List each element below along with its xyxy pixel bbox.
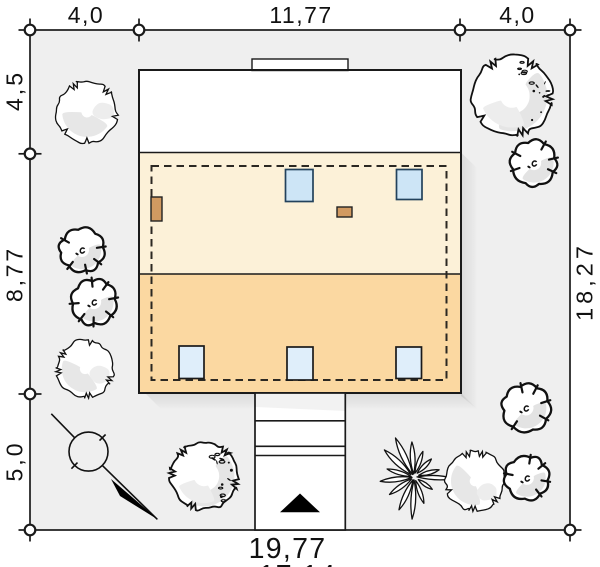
svg-text:11,77: 11,77 <box>269 2 332 28</box>
svg-text:18,27: 18,27 <box>572 242 598 321</box>
svg-text:17,14: 17,14 <box>259 560 337 567</box>
svg-text:5,0: 5,0 <box>2 441 28 482</box>
svg-text:4,0: 4,0 <box>68 2 104 28</box>
svg-text:8,77: 8,77 <box>2 246 28 302</box>
svg-text:4,0: 4,0 <box>499 2 535 28</box>
svg-text:4,5: 4,5 <box>2 70 28 111</box>
